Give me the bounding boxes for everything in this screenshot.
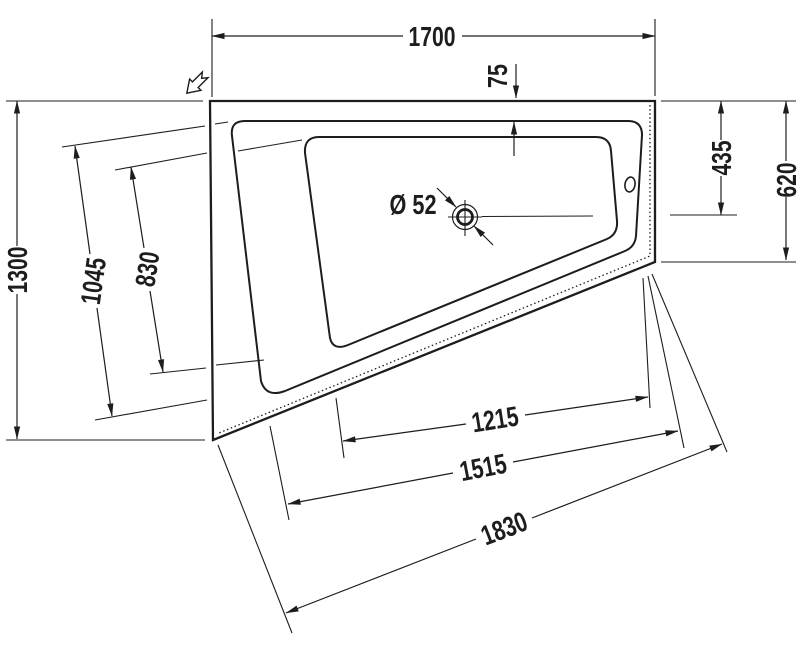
dimension-label-1045: 1045 [75, 256, 112, 307]
leader-line [474, 226, 493, 245]
dimension-line [97, 308, 112, 416]
dimension-line [286, 539, 476, 613]
dimension-label-1515: 1515 [457, 448, 509, 487]
dimension-top-width: 1700 [212, 19, 655, 97]
tub-panel-dotted-edge [219, 105, 650, 433]
dimension-label-75: 75 [482, 64, 513, 88]
tub-rim-contour [232, 121, 642, 393]
dimension-line [532, 444, 722, 518]
drain [448, 200, 593, 236]
bathtub-outline [210, 101, 655, 440]
leader-line [437, 188, 456, 207]
dimension-rim-inset: 75 [482, 64, 516, 156]
extension-line [643, 278, 650, 408]
extension-line [648, 276, 684, 448]
tub-basin-contour [305, 137, 617, 347]
bathtub-dimension-drawing: 1700 75 435 620 1300 1045 [0, 0, 800, 650]
dimension-label-1300: 1300 [2, 247, 33, 294]
dimension-line [525, 397, 648, 415]
extension-line [215, 122, 228, 124]
extension-line [115, 153, 207, 170]
dimension-line [288, 473, 453, 504]
extension-line [238, 140, 302, 151]
extension-line [150, 368, 206, 374]
extension-line [216, 360, 264, 365]
extension-line [270, 426, 289, 520]
dimension-line [513, 431, 678, 462]
view-direction-arrow-icon [181, 69, 211, 99]
extension-line [336, 398, 344, 458]
extension-line [95, 400, 207, 420]
dimension-right-side: 435 620 [661, 101, 800, 262]
dimension-label-1700: 1700 [409, 21, 456, 52]
extension-line [62, 126, 205, 147]
dimension-line [75, 146, 90, 254]
dimension-line [343, 424, 466, 441]
dimension-label-620: 620 [771, 163, 800, 198]
dimension-line [150, 291, 163, 372]
drain-centerline [482, 216, 593, 217]
extension-line [218, 445, 292, 633]
technical-drawing-page: 1700 75 435 620 1300 1045 [0, 0, 800, 650]
extension-line [652, 274, 727, 452]
dimension-basin-length: 830 [115, 140, 302, 374]
dimension-label-435: 435 [706, 141, 737, 176]
dimension-line [131, 167, 144, 248]
dimension-label-1830: 1830 [477, 506, 532, 552]
dimension-label-drain: Ø 52 [390, 189, 437, 220]
tub-outer-edge [210, 101, 655, 440]
dimension-label-1215: 1215 [469, 401, 520, 439]
overflow-icon [624, 176, 636, 193]
dimension-label-830: 830 [129, 249, 165, 288]
